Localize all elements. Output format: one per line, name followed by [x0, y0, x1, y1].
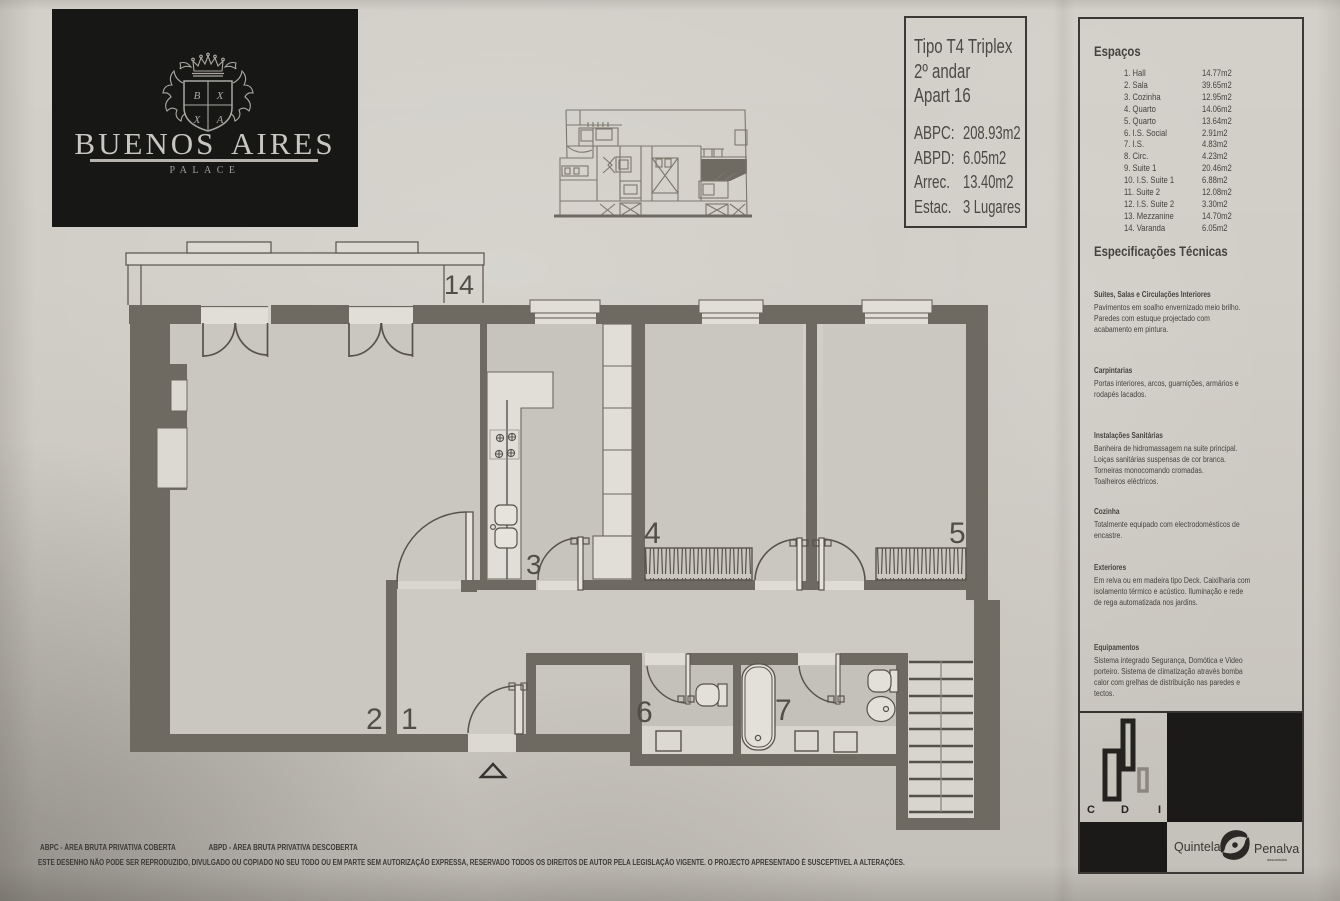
svg-text:5: 5	[949, 517, 966, 550]
svg-text:14: 14	[444, 270, 474, 300]
svg-text:4: 4	[644, 517, 661, 550]
svg-text:6: 6	[636, 696, 653, 729]
svg-text:1: 1	[401, 703, 418, 736]
svg-text:3: 3	[526, 549, 542, 580]
svg-text:7: 7	[775, 694, 792, 727]
svg-text:2: 2	[366, 703, 383, 736]
